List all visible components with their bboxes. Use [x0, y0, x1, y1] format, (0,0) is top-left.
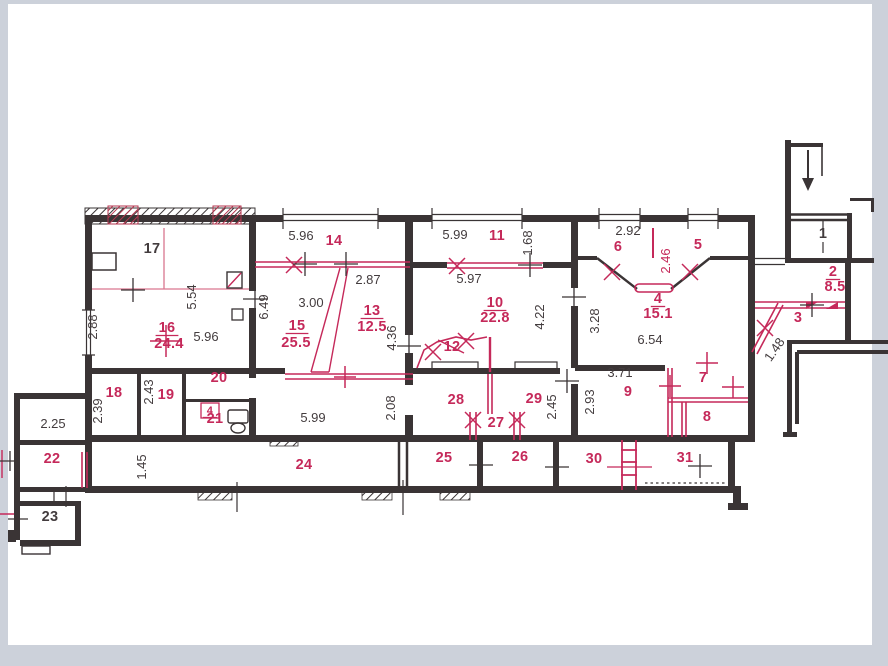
dimension-label: 6.49	[256, 294, 271, 319]
dimension-label: 2.39	[90, 398, 105, 423]
room-label: 7	[699, 370, 707, 386]
wall-foot	[22, 546, 50, 554]
dimension-label: 1.45	[134, 454, 149, 479]
dimension-label: 5.96	[288, 228, 313, 243]
dimension-label: 2.08	[383, 395, 398, 420]
dimension-label: 5.97	[456, 271, 481, 286]
room-label: 17	[144, 241, 161, 257]
dimension-label: 2.25	[40, 416, 65, 431]
wall-pier	[92, 253, 116, 270]
dimension-label: 2.43	[141, 379, 156, 404]
dimension-label: 5.99	[442, 227, 467, 242]
hatched-wall-piece	[270, 436, 298, 446]
floor-plan-canvas: 171624.4141525.51312.512111022.865415.13…	[0, 0, 888, 666]
room-label: 1	[819, 226, 827, 242]
dimension-label: 1.68	[520, 230, 535, 255]
room-label: 22.8	[480, 310, 509, 326]
room-label: 23	[42, 509, 59, 525]
hatched-wall-piece	[362, 487, 392, 500]
masonry-pier	[108, 206, 138, 224]
masonry-pier	[213, 206, 241, 224]
dimension-label: 3.00	[298, 295, 323, 310]
dimension-label: 2.46	[658, 248, 673, 273]
floor-plan-drawing: 171624.4141525.51312.512111022.865415.13…	[0, 0, 888, 666]
room-label: 29	[526, 391, 543, 407]
dimension-label: 5.99	[300, 410, 325, 425]
room-label: 9	[624, 384, 632, 400]
room-label: 22	[44, 451, 61, 467]
room-label: 31	[677, 450, 694, 466]
room-label: 27	[488, 415, 505, 431]
room-label: 5	[694, 237, 702, 253]
room-label: 30	[586, 451, 603, 467]
room-label: 10	[487, 295, 504, 311]
room-label: 25	[436, 450, 453, 466]
hatched-wall-piece	[198, 487, 232, 500]
dimension-label: 2.93	[582, 389, 597, 414]
dimension-label: 4.22	[532, 304, 547, 329]
dimension-label: 2.92	[615, 223, 640, 238]
room-label: 19	[158, 387, 175, 403]
dimension-label: 3.71	[607, 365, 632, 380]
dimension-label: 2.45	[544, 394, 559, 419]
room-label: 28	[448, 392, 465, 408]
fixture-label: 4	[207, 405, 214, 417]
room-label: 13	[364, 303, 381, 319]
room-label: 2	[829, 264, 837, 280]
room-label: 4	[654, 291, 662, 307]
hatched-wall-piece	[440, 487, 470, 500]
room-label: 15	[289, 318, 306, 334]
dimension-label: 5.54	[184, 284, 199, 309]
room-label: 6	[614, 239, 622, 255]
hatched-top-wall	[85, 206, 255, 224]
room-label: 26	[512, 449, 529, 465]
room-label: 16	[159, 320, 176, 336]
room-label: 8.5	[824, 279, 845, 295]
dimension-label: 6.54	[637, 332, 662, 347]
room-label: 25.5	[281, 335, 310, 351]
room-label: 11	[489, 228, 505, 244]
dimension-label: 5.96	[193, 329, 218, 344]
dimension-label: 2.87	[355, 272, 380, 287]
dimension-label: 2.88	[85, 314, 100, 339]
room-label: 24.4	[154, 336, 183, 352]
room-label: 3	[794, 310, 802, 326]
room-label: 18	[106, 385, 123, 401]
room-label: 24	[296, 457, 313, 473]
room-label: 12.5	[357, 319, 386, 335]
dimension-label: 3.28	[587, 308, 602, 333]
room-label: 20	[211, 370, 228, 386]
room-label: 14	[326, 233, 343, 249]
room-label: 15.1	[643, 306, 672, 322]
dimension-label: 4.36	[384, 325, 399, 350]
room-label: 8	[703, 409, 711, 425]
